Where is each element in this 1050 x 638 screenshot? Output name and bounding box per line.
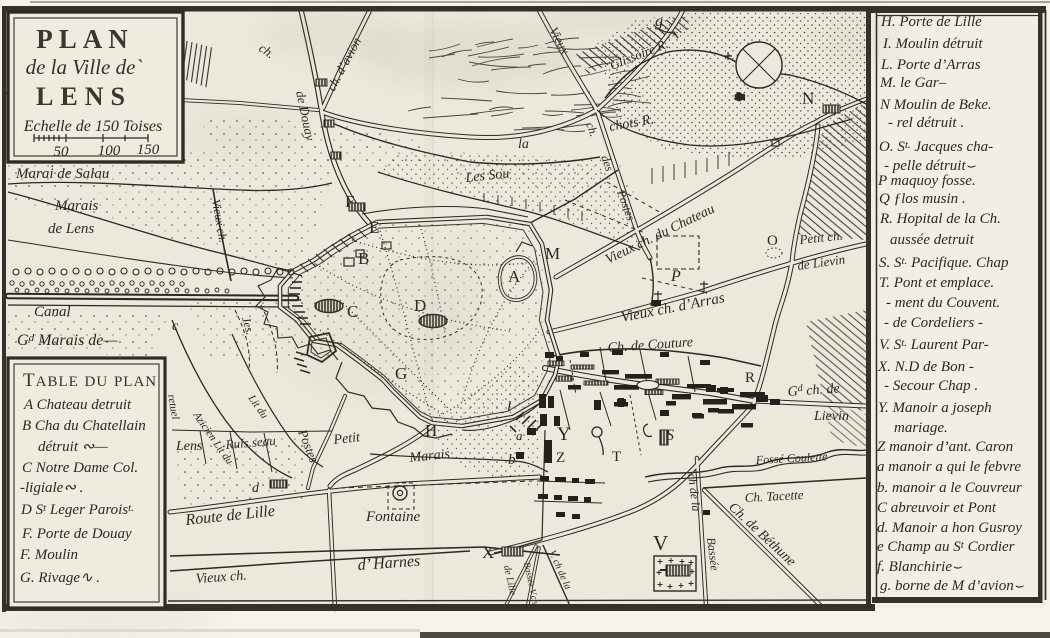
svg-text:Petit: Petit	[332, 430, 362, 448]
svg-text:Fontaine: Fontaine	[365, 509, 420, 525]
svg-text:D St Leger Paroist.: D St Leger Paroist.	[20, 502, 134, 518]
svg-text:a manoir a qui le febvre: a manoir a qui le febvre	[877, 459, 1021, 475]
svg-text:Z manoir d’ant. Caron: Z manoir d’ant. Caron	[877, 439, 1013, 455]
svg-text:I. Moulin détruit: I. Moulin détruit	[882, 36, 983, 52]
svg-text:Y. Manoir a joseph: Y. Manoir a joseph	[878, 400, 992, 416]
svg-text:PLAN: PLAN	[36, 24, 134, 54]
svg-text:a: a	[516, 428, 523, 443]
svg-text:de la Ville de`: de la Ville de`	[26, 55, 143, 79]
svg-text:N: N	[802, 89, 814, 108]
svg-text:mariage.: mariage.	[894, 420, 948, 436]
svg-text:b. manoir a le Couvreur: b. manoir a le Couvreur	[877, 480, 1022, 496]
svg-text:Echelle de 150 Toises: Echelle de 150 Toises	[23, 118, 163, 135]
svg-text:F: F	[345, 192, 354, 211]
svg-text:de Lens: de Lens	[48, 221, 94, 237]
svg-text:A: A	[508, 267, 521, 286]
svg-text:C Notre Dame Col.: C Notre Dame Col.	[22, 460, 138, 476]
svg-text:- ment du Couvent.: - ment du Couvent.	[886, 295, 1000, 311]
svg-text:aussée detruit: aussée detruit	[890, 232, 975, 248]
svg-text:V. St. Laurent Par-: V. St. Laurent Par-	[879, 337, 989, 353]
svg-text:O: O	[767, 233, 778, 249]
svg-text:M: M	[545, 244, 560, 263]
svg-text:T: T	[612, 449, 621, 465]
svg-text:L. Porte d’Arras: L. Porte d’Arras	[880, 57, 981, 73]
svg-text:M. le Gar–: M. le Gar–	[879, 75, 947, 91]
svg-text:g. borne de M d’avion⌣: g. borne de M d’avion⌣	[880, 578, 1025, 594]
svg-text:la: la	[518, 137, 529, 152]
svg-text:P: P	[670, 268, 681, 285]
svg-text:O. St. Jacques cha-: O. St. Jacques cha-	[879, 139, 993, 155]
svg-text:F. Porte de Douay: F. Porte de Douay	[21, 526, 132, 542]
svg-text:G. Rivage∿ .: G. Rivage∿ .	[20, 570, 100, 586]
svg-text:V: V	[653, 531, 668, 555]
svg-text:Ch. Tacette: Ch. Tacette	[744, 487, 804, 505]
svg-text:- pelle détruit⌣: - pelle détruit⌣	[884, 158, 977, 174]
svg-text:e Champ au St Cordier: e Champ au St Cordier	[877, 539, 1015, 555]
svg-text:F. Moulin: F. Moulin	[19, 547, 78, 563]
svg-text:Marais: Marais	[54, 198, 99, 214]
svg-text:d: d	[252, 481, 260, 496]
svg-text:Canal: Canal	[34, 304, 71, 320]
svg-text:R. Hopital de la Ch.: R. Hopital de la Ch.	[879, 211, 1001, 227]
svg-text:TABLE DU PLAN: TABLE DU PLAN	[23, 370, 157, 391]
svg-text:d. Manoir a hon Gusroy: d. Manoir a hon Gusroy	[877, 520, 1022, 536]
svg-text:H. Porte de Lille: H. Porte de Lille	[880, 14, 982, 30]
svg-text:f. Blanchirie⌣: f. Blanchirie⌣	[877, 559, 963, 575]
svg-text:C abreuvoir et Pont: C abreuvoir et Pont	[877, 500, 997, 516]
svg-text:A Chateau detruit: A Chateau detruit	[23, 397, 132, 413]
svg-text:150: 150	[137, 142, 160, 158]
svg-text:E: E	[369, 218, 379, 237]
svg-text:T. Pont et emplace.: T. Pont et emplace.	[879, 275, 994, 291]
svg-text:c: c	[172, 319, 179, 334]
svg-text:R: R	[745, 370, 755, 386]
svg-text:Z: Z	[556, 450, 565, 466]
svg-text:- rel détruit .: - rel détruit .	[888, 115, 964, 131]
svg-text:P maquoy fosse.: P maquoy fosse.	[877, 173, 976, 189]
svg-text:détruit ∾—: détruit ∾—	[38, 439, 108, 455]
svg-text:l: l	[507, 399, 511, 415]
svg-text:Y: Y	[557, 424, 571, 445]
svg-text:50: 50	[54, 144, 70, 160]
svg-text:X. N.D de Bon -: X. N.D de Bon -	[877, 359, 974, 375]
svg-text:B Cha du Chatellain: B Cha du Chatellain	[22, 418, 146, 434]
svg-text:S. St. Pacifique. Chap: S. St. Pacifique. Chap	[879, 255, 1009, 271]
svg-text:- de Cordeliers -: - de Cordeliers -	[884, 315, 983, 331]
svg-text:Marai̇ de Salau: Marai̇ de Salau	[15, 166, 109, 182]
svg-text:100: 100	[98, 143, 121, 159]
svg-text:- Secour Chap .: - Secour Chap .	[884, 378, 978, 394]
svg-text:Lievin: Lievin	[813, 409, 849, 424]
svg-text:N Moulin de Beke.: N Moulin de Beke.	[879, 97, 992, 113]
svg-text:S: S	[666, 427, 674, 444]
svg-text:LENS: LENS	[36, 82, 132, 111]
svg-text:b: b	[508, 452, 516, 468]
svg-text:X: X	[482, 543, 494, 562]
svg-text:-ligiale∾ .: -ligiale∾ .	[20, 480, 83, 496]
svg-text:Q ƒlos musin .: Q ƒlos musin .	[879, 191, 966, 207]
svg-text:Lens: Lens	[175, 439, 203, 454]
